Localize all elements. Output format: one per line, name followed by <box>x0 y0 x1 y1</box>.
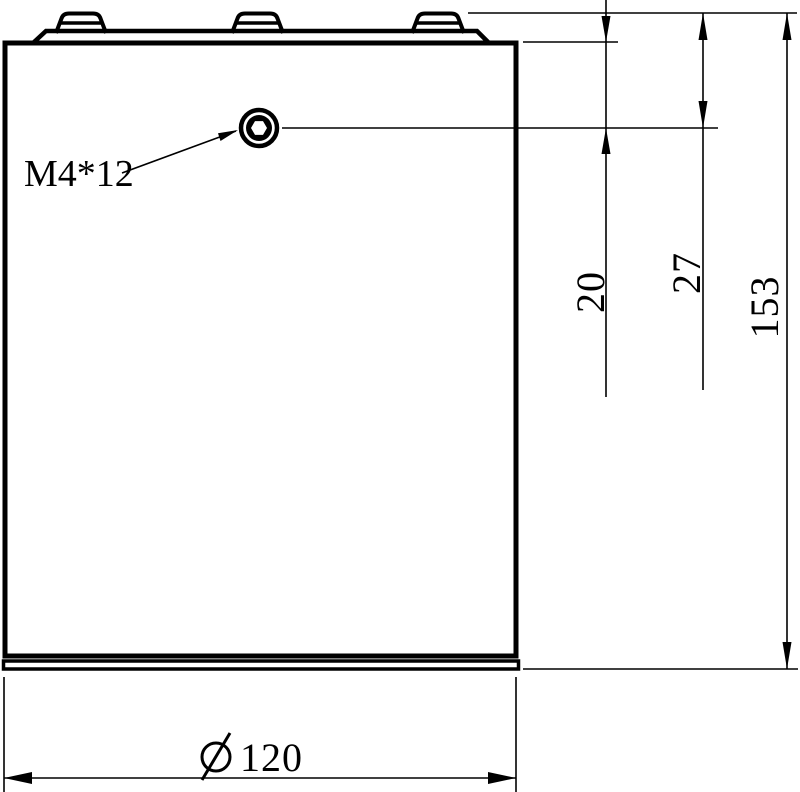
dimension-arrow-icon <box>783 13 792 40</box>
screw-hole <box>241 110 277 146</box>
dimension-label-20: 20 <box>568 271 613 313</box>
dimension-arrow-icon <box>602 16 611 42</box>
side-view <box>4 14 519 670</box>
dimension-label-153: 153 <box>742 276 787 339</box>
diameter-symbol-slash <box>202 733 230 780</box>
bottom-rim <box>4 661 519 669</box>
dimension-arrow-icon <box>488 772 516 784</box>
diameter-symbol <box>202 733 230 780</box>
technical-drawing: M4*12 20 27 153 120 <box>0 0 800 792</box>
screw-callout: M4*12 <box>24 130 238 195</box>
dimension-20: 20 <box>568 0 613 397</box>
screw-callout-label: M4*12 <box>24 153 134 195</box>
dimension-27: 27 <box>664 13 709 390</box>
dimension-arrow-icon <box>699 101 708 128</box>
leader-arrowhead-icon <box>218 130 238 141</box>
dimension-153: 153 <box>742 13 792 669</box>
dimension-diameter-120: 120 <box>4 733 516 784</box>
leader-line <box>122 131 236 173</box>
dimension-label-27: 27 <box>664 252 709 294</box>
dimension-arrow-icon <box>699 13 708 40</box>
dimension-arrow-icon <box>602 128 611 154</box>
dimension-arrow-icon <box>783 642 792 669</box>
dimension-arrow-icon <box>4 772 32 784</box>
dimension-label-diameter: 120 <box>240 735 303 780</box>
